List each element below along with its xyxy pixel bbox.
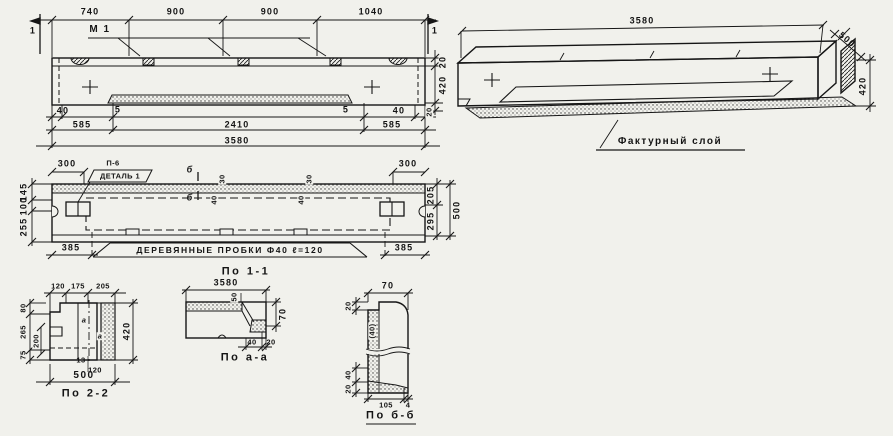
dim-40-right: 40 (393, 107, 405, 116)
sbb-dim-40-mid: (40) (368, 323, 376, 340)
sbb-dim-40-bot: 40 (344, 370, 352, 379)
saa-dim-3580: 3580 (214, 279, 239, 288)
dim-1040: 1040 (359, 8, 384, 17)
dim-right-420: 420 (439, 75, 448, 96)
dim-3580-total: 3580 (225, 137, 250, 146)
dim-740: 740 (81, 8, 100, 17)
facture-layer-label: Фактурный слой (618, 137, 722, 147)
sbb-dim-4: 4 (406, 401, 411, 409)
saa-dim-50: 50 (230, 291, 238, 302)
plan-dim-385-right: 385 (395, 244, 414, 253)
dim-right-20-bot: 20 (425, 106, 433, 117)
detail-1-label: ДЕТАЛЬ 1 (100, 172, 140, 180)
sbb-title-po-b-b: По б-б (366, 411, 416, 422)
section-flag-1-right: 1 (432, 27, 438, 36)
section-b-b (368, 302, 408, 393)
wooden-plugs-note: ДЕРЕВЯННЫЕ ПРОБКИ Ф40 ℓ=120 (136, 246, 323, 255)
elevation-view (52, 58, 425, 105)
plan-dim-205: 205 (427, 186, 436, 205)
dim-900-b: 900 (261, 8, 280, 17)
dim-900-a: 900 (167, 8, 186, 17)
section-a-a (186, 302, 266, 338)
axon-view (458, 39, 856, 118)
plan-dim-295: 295 (427, 212, 436, 231)
plan-dim-30-a: 30 (218, 173, 226, 184)
axon-ticks (458, 21, 874, 110)
s22-title-po-2-2: По 2-2 (62, 389, 111, 400)
s22-dim-13: 13 (76, 356, 85, 364)
dim-5-right: 5 (343, 106, 349, 115)
s22-dim-205: 205 (96, 282, 110, 290)
s22-dim-420: 420 (123, 321, 132, 342)
plan-view (52, 170, 425, 242)
dim-right-20-top: 20 (439, 55, 448, 69)
plan-dim-100: 100 (20, 197, 29, 216)
sbb-dim-70: 70 (382, 282, 394, 291)
s22-dim-80: 80 (19, 303, 27, 312)
dim-585-left: 585 (73, 121, 92, 130)
sbb-dim-20-top: 20 (344, 301, 352, 310)
plan-dim-385-left: 385 (62, 244, 81, 253)
saa-dim-70: 70 (279, 307, 288, 321)
plan-title-po-1-1: По 1-1 (222, 267, 271, 278)
axon-dim-500: 500 (837, 31, 857, 50)
s22-dim-500: 500 (73, 371, 94, 381)
s22-dim-120: 120 (51, 282, 65, 290)
plan-dim-255: 255 (20, 218, 29, 237)
plan-dim-500: 500 (453, 201, 462, 220)
dim-2410: 2410 (225, 121, 250, 130)
sbb-ticks (352, 289, 412, 403)
dim-5-left: 5 (115, 106, 121, 115)
saa-dim-40: 40 (247, 338, 256, 346)
sbb-dim-105: 105 (379, 401, 393, 409)
saa-title-po-a-a: По а-а (221, 353, 270, 364)
plan-dim-40-a: 40 (210, 194, 218, 205)
s22-dim-75: 75 (19, 350, 27, 359)
s22-dim-175: 175 (71, 282, 85, 290)
plan-dim-30-b: 30 (305, 173, 313, 184)
plan-dim-40-b: 40 (297, 194, 305, 205)
dim-585-right: 585 (383, 121, 402, 130)
s22-dim-265: 265 (19, 325, 27, 339)
section-flag-1-left: 1 (30, 27, 36, 36)
drawing-sheet: 1 1 М 1 740 900 900 1040 20 420 20 40 5 … (0, 0, 893, 436)
axon-dim-3580: 3580 (630, 17, 655, 26)
section-letter-b-top: б (187, 166, 194, 175)
axon-dim-420: 420 (859, 76, 868, 97)
s22-dim-200: 200 (32, 333, 40, 349)
dim-40-left: 40 (57, 107, 69, 116)
plan-dim-300-left: 300 (58, 160, 77, 169)
sbb-dim-20-bot: 20 (344, 384, 352, 393)
saa-dim-20: 20 (266, 338, 275, 346)
elevation-ticks (48, 16, 439, 150)
section-letter-b-bot: б (187, 194, 194, 203)
plan-dim-300-right: 300 (399, 160, 418, 169)
s22-letter-a1: а (81, 316, 88, 324)
lifting-loop-mark: М 1 (89, 25, 110, 35)
panel-mark-p6: П-6 (106, 159, 119, 167)
s22-letter-a2: а (97, 332, 104, 340)
